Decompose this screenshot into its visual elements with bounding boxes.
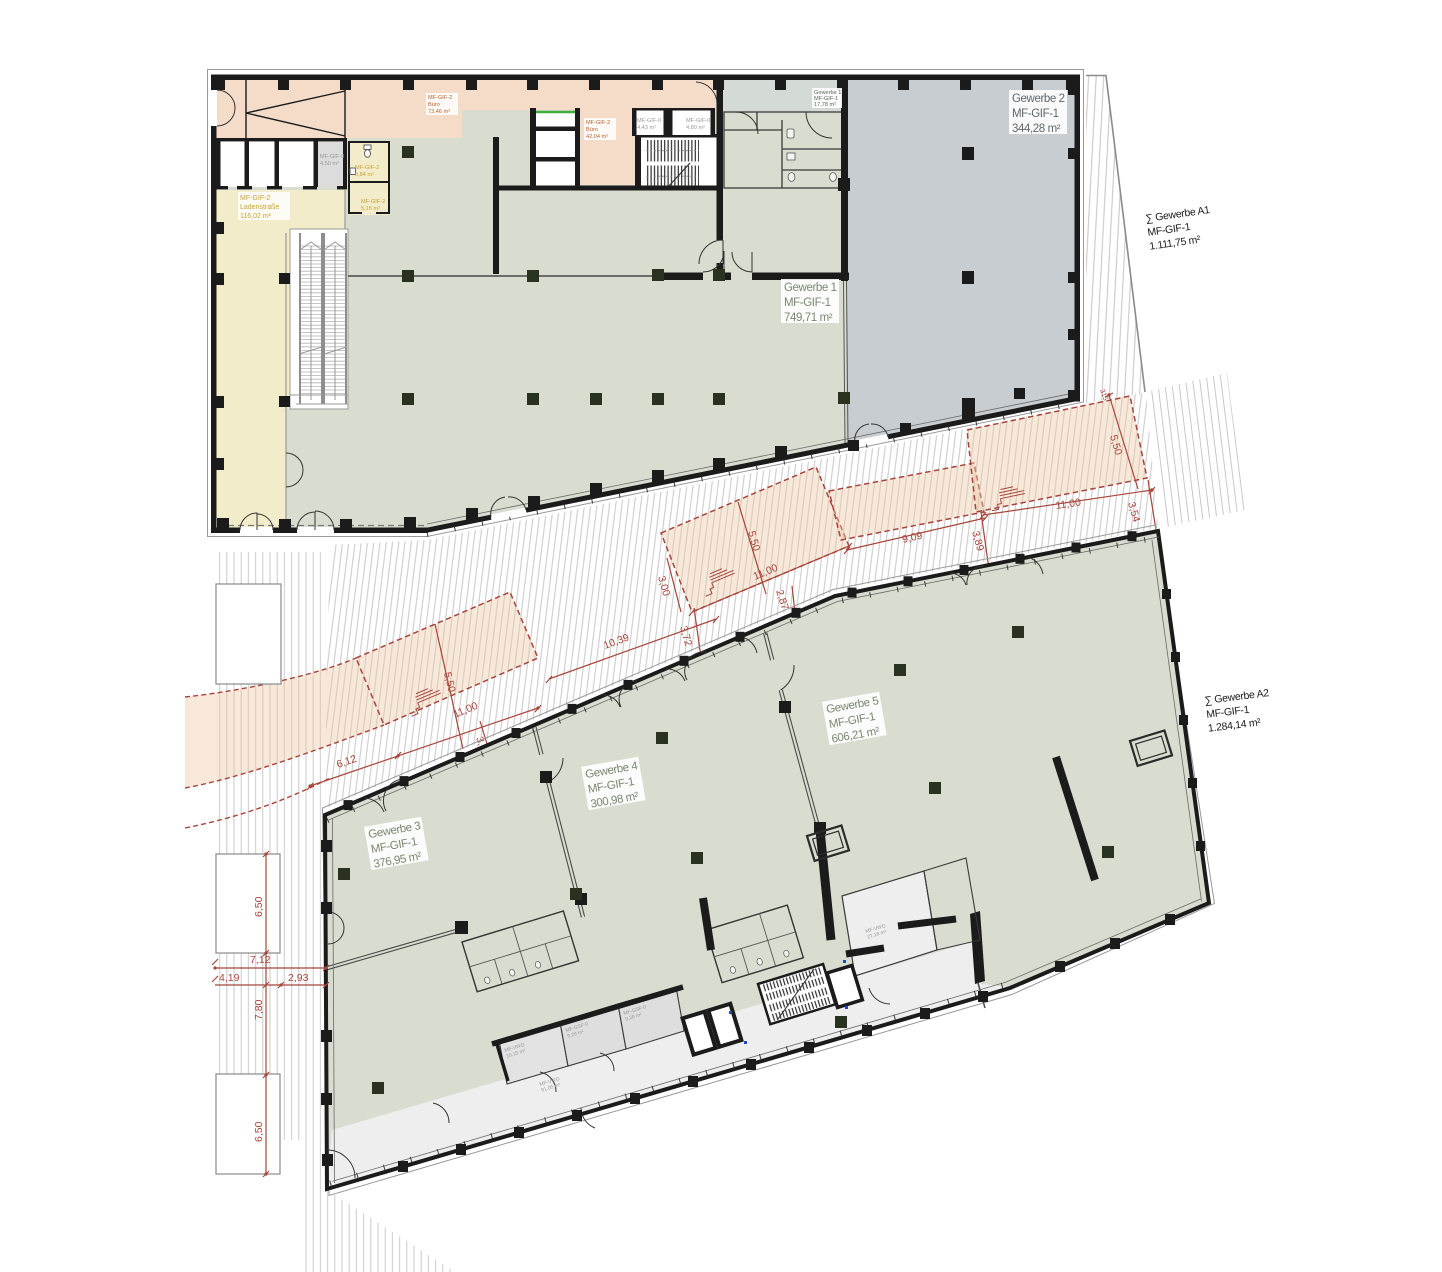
svg-text:4,50 m²: 4,50 m²: [320, 161, 339, 167]
svg-text:42,04 m²: 42,04 m²: [586, 134, 608, 140]
svg-text:MF-GIF-2: MF-GIF-2: [240, 195, 270, 202]
svg-text:6,50: 6,50: [253, 896, 265, 917]
svg-text:344,28 m²: 344,28 m²: [1012, 123, 1061, 135]
svg-text:0,84 m²: 0,84 m²: [355, 172, 374, 178]
svg-text:MF-GIF-2: MF-GIF-2: [355, 165, 379, 171]
svg-text:7,80: 7,80: [253, 999, 265, 1020]
svg-text:2,93: 2,93: [288, 972, 309, 984]
svg-text:Gewerbe 1: Gewerbe 1: [784, 282, 837, 294]
svg-text:MF-GIF-0: MF-GIF-0: [637, 118, 661, 124]
svg-text:Ladenstraße: Ladenstraße: [240, 204, 279, 211]
svg-text:Gewerbe 2: Gewerbe 2: [1012, 93, 1065, 105]
svg-text:17,78 m²: 17,78 m²: [814, 102, 836, 108]
svg-text:4,80 m²: 4,80 m²: [686, 125, 705, 131]
svg-text:MF-GIF-1: MF-GIF-1: [784, 297, 831, 309]
svg-text:MF-GIF-1: MF-GIF-1: [1012, 108, 1059, 120]
svg-text:MF-GIF-2: MF-GIF-2: [586, 120, 610, 126]
svg-text:6,50: 6,50: [253, 1121, 265, 1142]
svg-text:Büro: Büro: [586, 127, 598, 133]
svg-text:MF-GIF-2: MF-GIF-2: [361, 199, 385, 205]
svg-text:7,12: 7,12: [250, 954, 271, 966]
svg-text:MF-GIF-2: MF-GIF-2: [428, 95, 452, 101]
svg-text:749,71 m²: 749,71 m²: [784, 312, 833, 324]
svg-text:5,15 m²: 5,15 m²: [361, 206, 380, 212]
svg-text:MF-GIF-0: MF-GIF-0: [320, 154, 344, 160]
svg-text:73,46 m²: 73,46 m²: [428, 109, 450, 115]
svg-text:MF-GIF-0: MF-GIF-0: [686, 118, 710, 124]
svg-text:Büro: Büro: [428, 102, 440, 108]
svg-text:4,19: 4,19: [219, 972, 240, 984]
svg-text:116,02 m²: 116,02 m²: [240, 213, 272, 220]
svg-text:4,43 m²: 4,43 m²: [637, 125, 656, 131]
